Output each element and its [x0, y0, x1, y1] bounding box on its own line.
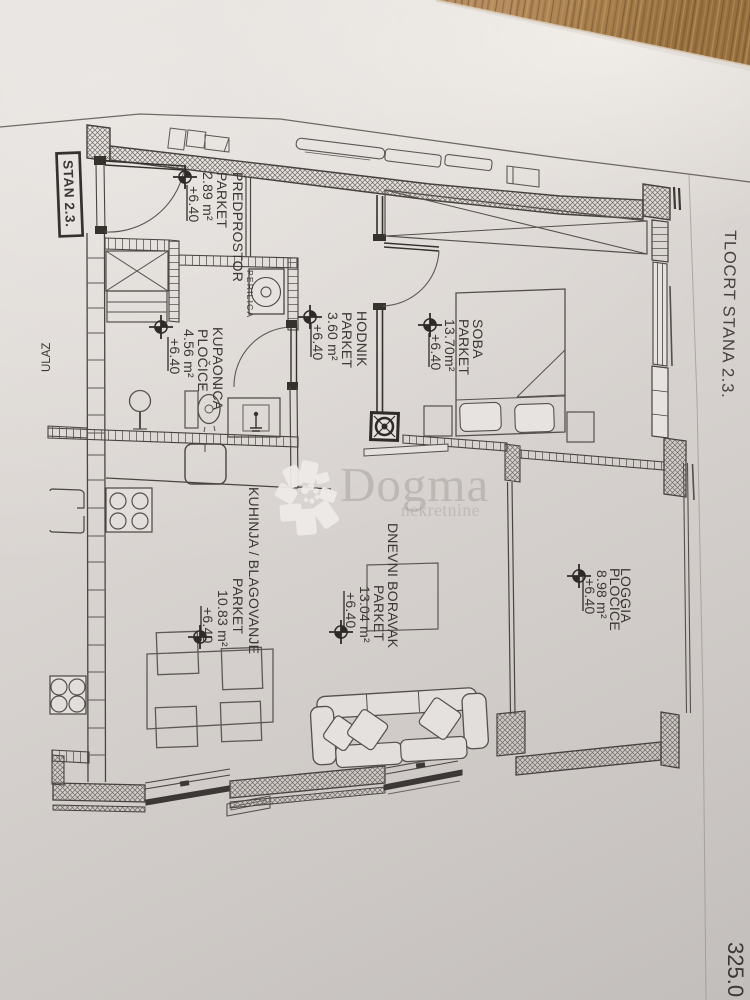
svg-text:+6.40: +6.40	[310, 324, 326, 360]
svg-text:PARKET: PARKET	[230, 578, 246, 634]
svg-text:+6.40: +6.40	[428, 334, 444, 370]
svg-text:325.0: 325.0	[723, 942, 748, 997]
svg-text:PREDPROSTOR: PREDPROSTOR	[230, 172, 246, 282]
svg-text:+6.40: +6.40	[186, 186, 202, 222]
svg-text:+6.40: +6.40	[167, 338, 183, 374]
svg-text:STAN 2.3.: STAN 2.3.	[60, 160, 78, 228]
svg-text:HODNIK: HODNIK	[354, 311, 370, 367]
svg-text:10.83 m²: 10.83 m²	[215, 590, 231, 647]
svg-text:PERILICA: PERILICA	[245, 270, 255, 318]
svg-text:3.60 m²: 3.60 m²	[325, 312, 341, 361]
svg-text:nekretnine: nekretnine	[401, 500, 480, 520]
svg-text:+6.40: +6.40	[343, 592, 359, 628]
svg-text:KUPAONICA: KUPAONICA	[210, 327, 226, 411]
svg-text:+6.40: +6.40	[200, 607, 216, 643]
svg-text:KUHINJA / BLAGOVANJE: KUHINJA / BLAGOVANJE	[246, 487, 262, 654]
svg-text:+6.40: +6.40	[582, 578, 598, 614]
svg-text:ULAZ: ULAZ	[41, 343, 53, 372]
svg-text:TLOCRT STANA 2.3.: TLOCRT STANA 2.3.	[718, 230, 739, 399]
